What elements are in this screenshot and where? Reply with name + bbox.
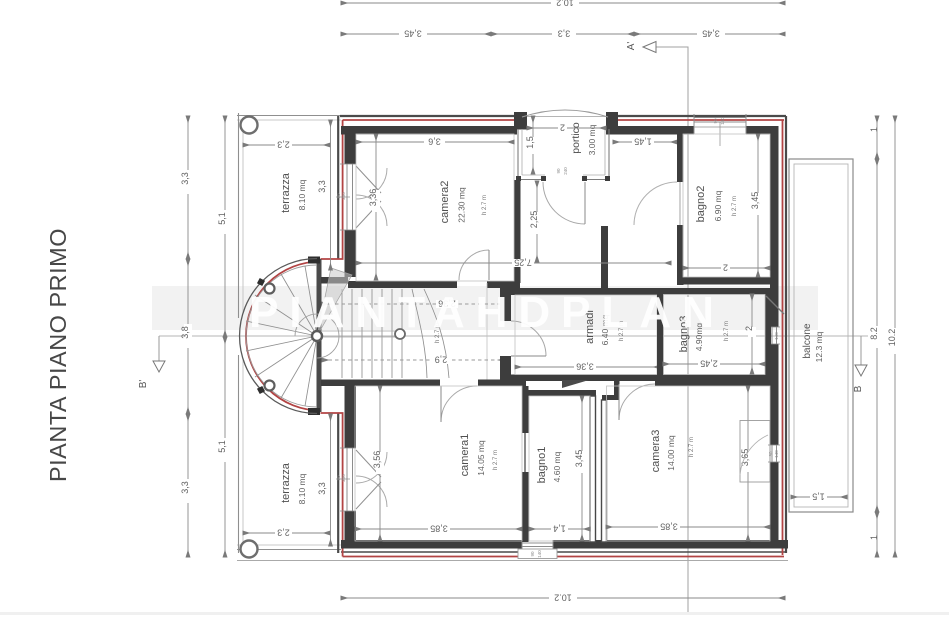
svg-text:PIANTAHDPLAN: PIANTAHDPLAN bbox=[249, 288, 725, 337]
svg-text:h 2.7 m: h 2.7 m bbox=[689, 437, 695, 457]
svg-text:1,5: 1,5 bbox=[812, 492, 825, 502]
svg-text:1,45: 1,45 bbox=[634, 137, 652, 147]
svg-text:90: 90 bbox=[556, 168, 561, 174]
svg-text:5,1: 5,1 bbox=[217, 440, 227, 453]
svg-text:3,6: 3,6 bbox=[428, 137, 441, 147]
svg-text:3,3: 3,3 bbox=[180, 172, 190, 185]
svg-text:5,1: 5,1 bbox=[217, 212, 227, 225]
svg-text:1: 1 bbox=[869, 127, 879, 132]
svg-text:terrazza: terrazza bbox=[280, 172, 292, 213]
svg-text:3,36: 3,36 bbox=[368, 189, 378, 207]
svg-text:90: 90 bbox=[713, 118, 718, 124]
svg-text:3,45: 3,45 bbox=[702, 29, 720, 39]
svg-text:3,85: 3,85 bbox=[660, 522, 678, 532]
svg-text:14.00 mq: 14.00 mq bbox=[666, 435, 676, 471]
svg-text:140: 140 bbox=[774, 332, 779, 340]
svg-text:2,3: 2,3 bbox=[277, 140, 290, 150]
svg-text:camera1: camera1 bbox=[459, 434, 471, 477]
svg-text:2,9: 2,9 bbox=[435, 355, 448, 365]
svg-text:90: 90 bbox=[530, 551, 535, 557]
svg-text:balcone: balcone bbox=[802, 323, 813, 358]
svg-text:240: 240 bbox=[563, 167, 568, 175]
svg-text:2,25: 2,25 bbox=[529, 211, 539, 229]
svg-text:PIANTA PIANO PRIMO: PIANTA PIANO PRIMO bbox=[45, 228, 71, 482]
svg-text:h 2.7 m: h 2.7 m bbox=[493, 450, 499, 470]
svg-text:3,45: 3,45 bbox=[750, 192, 760, 210]
svg-text:2,3: 2,3 bbox=[277, 528, 290, 538]
svg-text:10.2: 10.2 bbox=[556, 0, 574, 8]
svg-text:230: 230 bbox=[341, 192, 346, 200]
svg-text:3,3: 3,3 bbox=[180, 481, 190, 494]
svg-text:3,56: 3,56 bbox=[372, 451, 382, 469]
svg-text:A': A' bbox=[626, 42, 637, 51]
svg-text:bagno2: bagno2 bbox=[695, 186, 707, 223]
svg-text:10.2: 10.2 bbox=[554, 593, 572, 603]
svg-text:camera2: camera2 bbox=[439, 181, 451, 224]
svg-text:h 2.7 m: h 2.7 m bbox=[732, 196, 738, 216]
svg-text:3,45: 3,45 bbox=[574, 450, 584, 468]
svg-text:terrazza: terrazza bbox=[280, 462, 292, 503]
svg-text:3,3: 3,3 bbox=[317, 482, 327, 495]
svg-text:8.2: 8.2 bbox=[869, 327, 879, 340]
svg-text:4.60 mq: 4.60 mq bbox=[552, 451, 562, 482]
svg-text:8.10 mq: 8.10 mq bbox=[297, 473, 307, 504]
svg-text:3.00 mq: 3.00 mq bbox=[587, 124, 597, 155]
svg-text:1: 1 bbox=[869, 535, 879, 540]
svg-text:3,45: 3,45 bbox=[404, 29, 422, 39]
svg-text:140: 140 bbox=[774, 450, 779, 458]
svg-text:6.90 mq: 6.90 mq bbox=[713, 190, 723, 221]
svg-text:1,4: 1,4 bbox=[553, 524, 566, 534]
svg-text:22.30 mq: 22.30 mq bbox=[457, 187, 467, 223]
svg-text:3,3: 3,3 bbox=[558, 29, 571, 39]
svg-text:camera3: camera3 bbox=[650, 430, 662, 473]
svg-text:B': B' bbox=[138, 380, 149, 389]
svg-text:3,8: 3,8 bbox=[180, 326, 190, 339]
svg-text:7,25: 7,25 bbox=[514, 258, 532, 268]
svg-text:14.05 mq: 14.05 mq bbox=[476, 440, 486, 476]
svg-text:8.10 mq: 8.10 mq bbox=[297, 179, 307, 210]
svg-text:1,5: 1,5 bbox=[525, 136, 535, 149]
svg-text:B: B bbox=[853, 385, 864, 392]
svg-text:3,36: 3,36 bbox=[576, 362, 594, 372]
svg-text:2,45: 2,45 bbox=[700, 359, 718, 369]
svg-text:90: 90 bbox=[768, 451, 773, 457]
svg-text:bagno1: bagno1 bbox=[536, 447, 548, 484]
svg-text:2: 2 bbox=[723, 263, 728, 273]
svg-text:140: 140 bbox=[720, 117, 725, 125]
svg-text:230: 230 bbox=[341, 474, 346, 482]
svg-text:140: 140 bbox=[537, 550, 542, 558]
svg-text:2: 2 bbox=[744, 326, 754, 331]
svg-text:portico: portico bbox=[570, 122, 582, 154]
svg-text:3,3: 3,3 bbox=[317, 180, 327, 193]
svg-text:10.2: 10.2 bbox=[887, 329, 897, 347]
svg-text:h 2.7 m: h 2.7 m bbox=[482, 195, 488, 215]
svg-text:3,85: 3,85 bbox=[430, 524, 448, 534]
svg-text:12.3 mq: 12.3 mq bbox=[814, 331, 824, 362]
svg-text:2: 2 bbox=[560, 123, 565, 133]
